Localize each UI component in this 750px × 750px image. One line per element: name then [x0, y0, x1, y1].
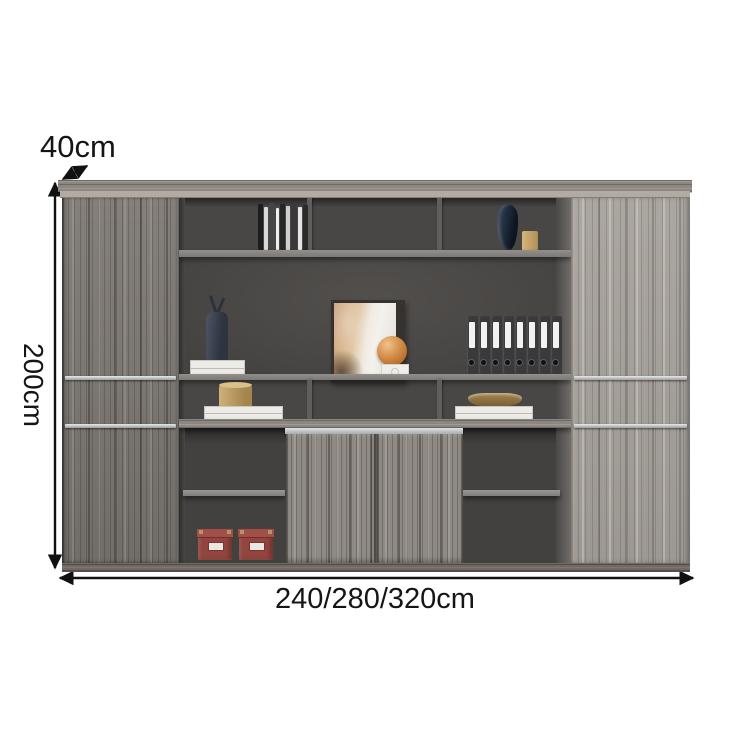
- product-dimension-image: 40cm 200cm 240/280/320cm: [0, 0, 750, 750]
- box-corner: [240, 530, 244, 534]
- book-spine: [264, 207, 268, 250]
- top-row-divider: [437, 197, 442, 250]
- book-spine: [291, 203, 297, 250]
- box-corner: [268, 530, 272, 534]
- book-spine: [298, 207, 302, 250]
- book-spine: [269, 203, 275, 250]
- depth-arrow: [63, 166, 87, 179]
- book-spine: [258, 204, 263, 250]
- book-spine: [286, 206, 290, 250]
- gold-canister: [219, 385, 252, 407]
- left-wardrobe-door: [62, 197, 179, 563]
- binder: [527, 316, 538, 374]
- middle-row-divider: [437, 380, 442, 419]
- counter-shelf: [179, 419, 571, 428]
- door-handle: [574, 424, 687, 428]
- width-dimension-label: 240/280/320cm: [255, 583, 495, 616]
- book-spine: [276, 208, 279, 250]
- white-books: [204, 406, 283, 420]
- navy-vase: [497, 204, 518, 250]
- book-spine: [303, 205, 308, 250]
- binder: [551, 316, 562, 374]
- sliding-door-left: [286, 434, 376, 563]
- binder: [515, 316, 526, 374]
- middle-row-divider: [307, 380, 312, 419]
- door-handle: [574, 376, 687, 380]
- depth-dimension-label: 40cm: [40, 129, 116, 165]
- book-spine: [280, 204, 285, 250]
- binder: [503, 316, 514, 374]
- books-stack: [258, 202, 306, 250]
- cabinet-bottom-board: [62, 563, 690, 572]
- door-handle: [65, 424, 176, 428]
- door-handle: [65, 376, 176, 380]
- box-corner: [199, 530, 203, 534]
- sliding-door-right: [376, 434, 463, 563]
- orange-sphere: [377, 336, 407, 366]
- binder: [539, 316, 550, 374]
- box-corner: [227, 530, 231, 534]
- lower-right-shelf: [463, 490, 560, 496]
- gold-candle: [522, 231, 538, 250]
- white-books: [455, 406, 533, 420]
- binder: [467, 316, 478, 374]
- height-dimension-label: 200cm: [17, 337, 49, 433]
- sculpture-vase: [206, 312, 228, 361]
- cabinet-top-trim: [60, 191, 690, 198]
- bronze-bowl: [468, 393, 522, 406]
- binder: [479, 316, 490, 374]
- shelf: [179, 374, 571, 380]
- red-storage-box: [239, 529, 273, 560]
- binder: [491, 316, 502, 374]
- lower-left-shelf: [183, 490, 285, 496]
- binder-row: [467, 316, 562, 374]
- right-wardrobe-door: [571, 197, 690, 563]
- red-storage-box: [198, 529, 232, 560]
- shelf: [179, 250, 571, 257]
